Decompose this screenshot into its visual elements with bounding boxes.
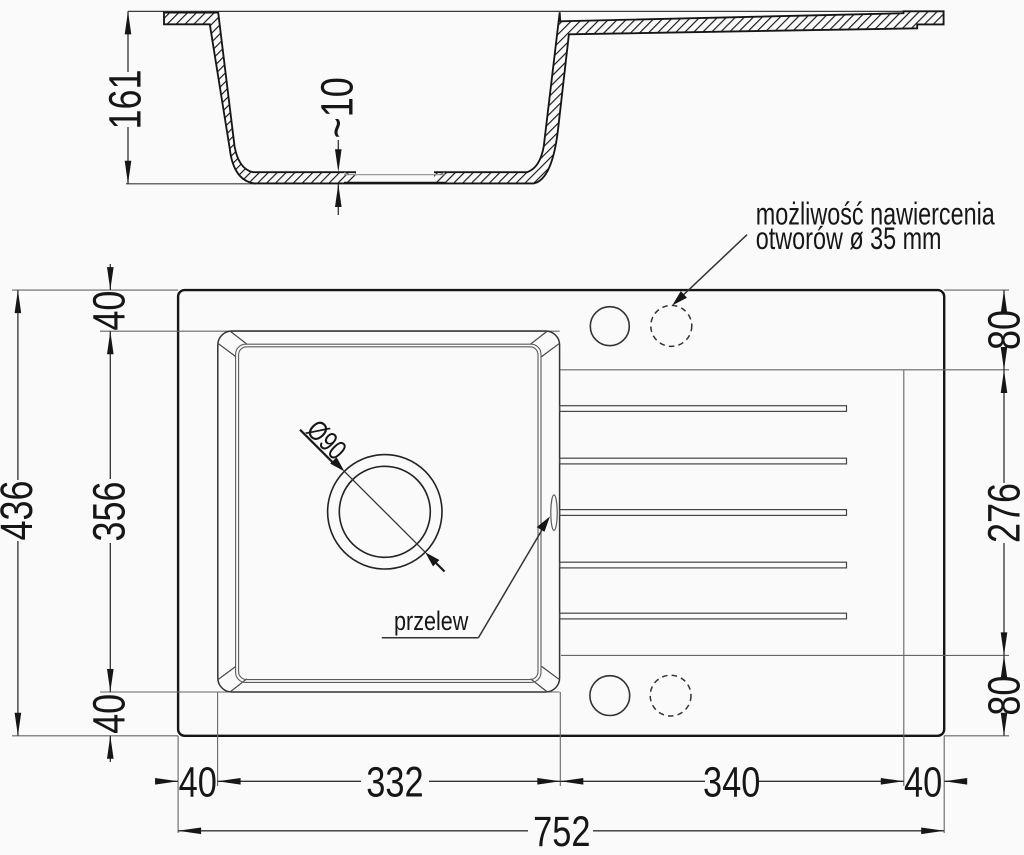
svg-text:40: 40 xyxy=(904,759,942,806)
svg-text:40: 40 xyxy=(179,759,217,806)
svg-text:40: 40 xyxy=(83,291,134,331)
svg-text:332: 332 xyxy=(366,759,423,806)
svg-text:przelew: przelew xyxy=(394,607,469,637)
svg-text:80: 80 xyxy=(979,310,1024,350)
svg-text:436: 436 xyxy=(0,480,42,540)
svg-text:40: 40 xyxy=(83,694,134,734)
svg-text:276: 276 xyxy=(979,483,1024,543)
svg-text:~10: ~10 xyxy=(312,77,363,138)
svg-text:356: 356 xyxy=(83,481,134,541)
svg-text:otworów ø 35 mm: otworów ø 35 mm xyxy=(756,220,942,255)
svg-text:340: 340 xyxy=(703,759,760,806)
svg-text:752: 752 xyxy=(533,808,590,855)
svg-text:161: 161 xyxy=(100,69,151,129)
svg-text:80: 80 xyxy=(979,676,1024,716)
